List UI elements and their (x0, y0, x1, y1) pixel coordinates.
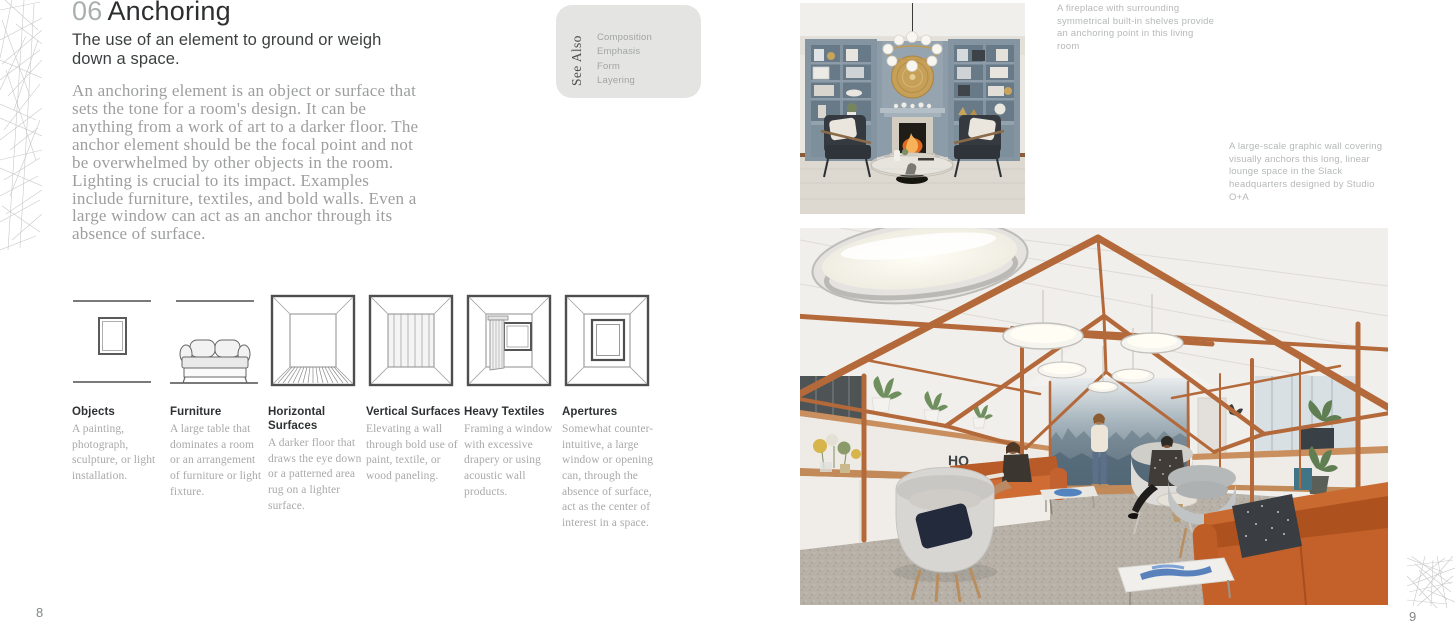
glossary-description: Somewhat counter-intuitive, a large wind… (562, 422, 657, 531)
glossary-label: Horizontal Surfaces (268, 405, 363, 433)
decorative-line-art-bottom-right (1407, 556, 1455, 608)
see-also-item: Form (597, 60, 652, 74)
see-also-item: Emphasis (597, 45, 652, 59)
glossary-label: Heavy Textiles (464, 405, 559, 419)
glossary-description: A darker floor that draws the eye down o… (268, 436, 363, 514)
glossary-item: Objects A painting, photograph, sculptur… (72, 293, 167, 485)
room-floor-icon (268, 293, 360, 389)
chapter-title: Anchoring (107, 0, 230, 26)
glossary-label: Apertures (562, 405, 657, 419)
sofa-icon (170, 293, 262, 389)
glossary-item: Apertures Somewhat counter-intuitive, a … (562, 293, 657, 531)
office-lounge-photo: HQ (800, 228, 1388, 605)
see-also-label: See Also (569, 18, 585, 86)
glossary-item: Horizontal Surfaces A darker floor that … (268, 293, 363, 514)
body-paragraph: An anchoring element is an object or sur… (72, 82, 424, 243)
see-also-box: See Also Composition Emphasis Form Layer… (556, 5, 701, 98)
framed-art-icon (72, 293, 164, 389)
glossary-description: A large table that dominates a room or a… (170, 422, 265, 500)
glossary-label: Vertical Surfaces (366, 405, 461, 419)
photo-caption-lounge: A large-scale graphic wall covering visu… (1229, 141, 1389, 204)
glossary-label: Furniture (170, 405, 265, 419)
glossary-item: Furniture A large table that dominates a… (170, 293, 265, 500)
decorative-line-art-top-left (0, 0, 42, 252)
see-also-list: Composition Emphasis Form Layering (597, 31, 652, 88)
glossary-description: Framing a window with excessive drapery … (464, 422, 559, 500)
photo-caption-living-room: A fireplace with surrounding symmetrical… (1057, 3, 1215, 54)
book-spread: 06Anchoring The use of an element to gro… (0, 0, 1455, 642)
glossary-label: Objects (72, 405, 167, 419)
page-number-right: 9 (1409, 609, 1416, 624)
glossary-item: Vertical Surfaces Elevating a wall throu… (366, 293, 461, 485)
chapter-subtitle: The use of an element to ground or weigh… (72, 31, 394, 70)
living-room-photo (800, 3, 1025, 214)
see-also-item: Layering (597, 74, 652, 88)
glossary-item: Heavy Textiles Framing a window with exc… (464, 293, 559, 500)
see-also-item: Composition (597, 31, 652, 45)
glossary-description: Elevating a wall through bold use of pai… (366, 422, 461, 485)
room-paneled-wall-icon (366, 293, 458, 389)
page-number-left: 8 (36, 605, 43, 620)
glossary-description: A painting, photograph, sculpture, or li… (72, 422, 167, 485)
chapter-number: 06 (72, 0, 102, 26)
room-window-icon (562, 293, 654, 389)
page-title: 06Anchoring (72, 0, 231, 25)
room-curtain-icon (464, 293, 556, 389)
